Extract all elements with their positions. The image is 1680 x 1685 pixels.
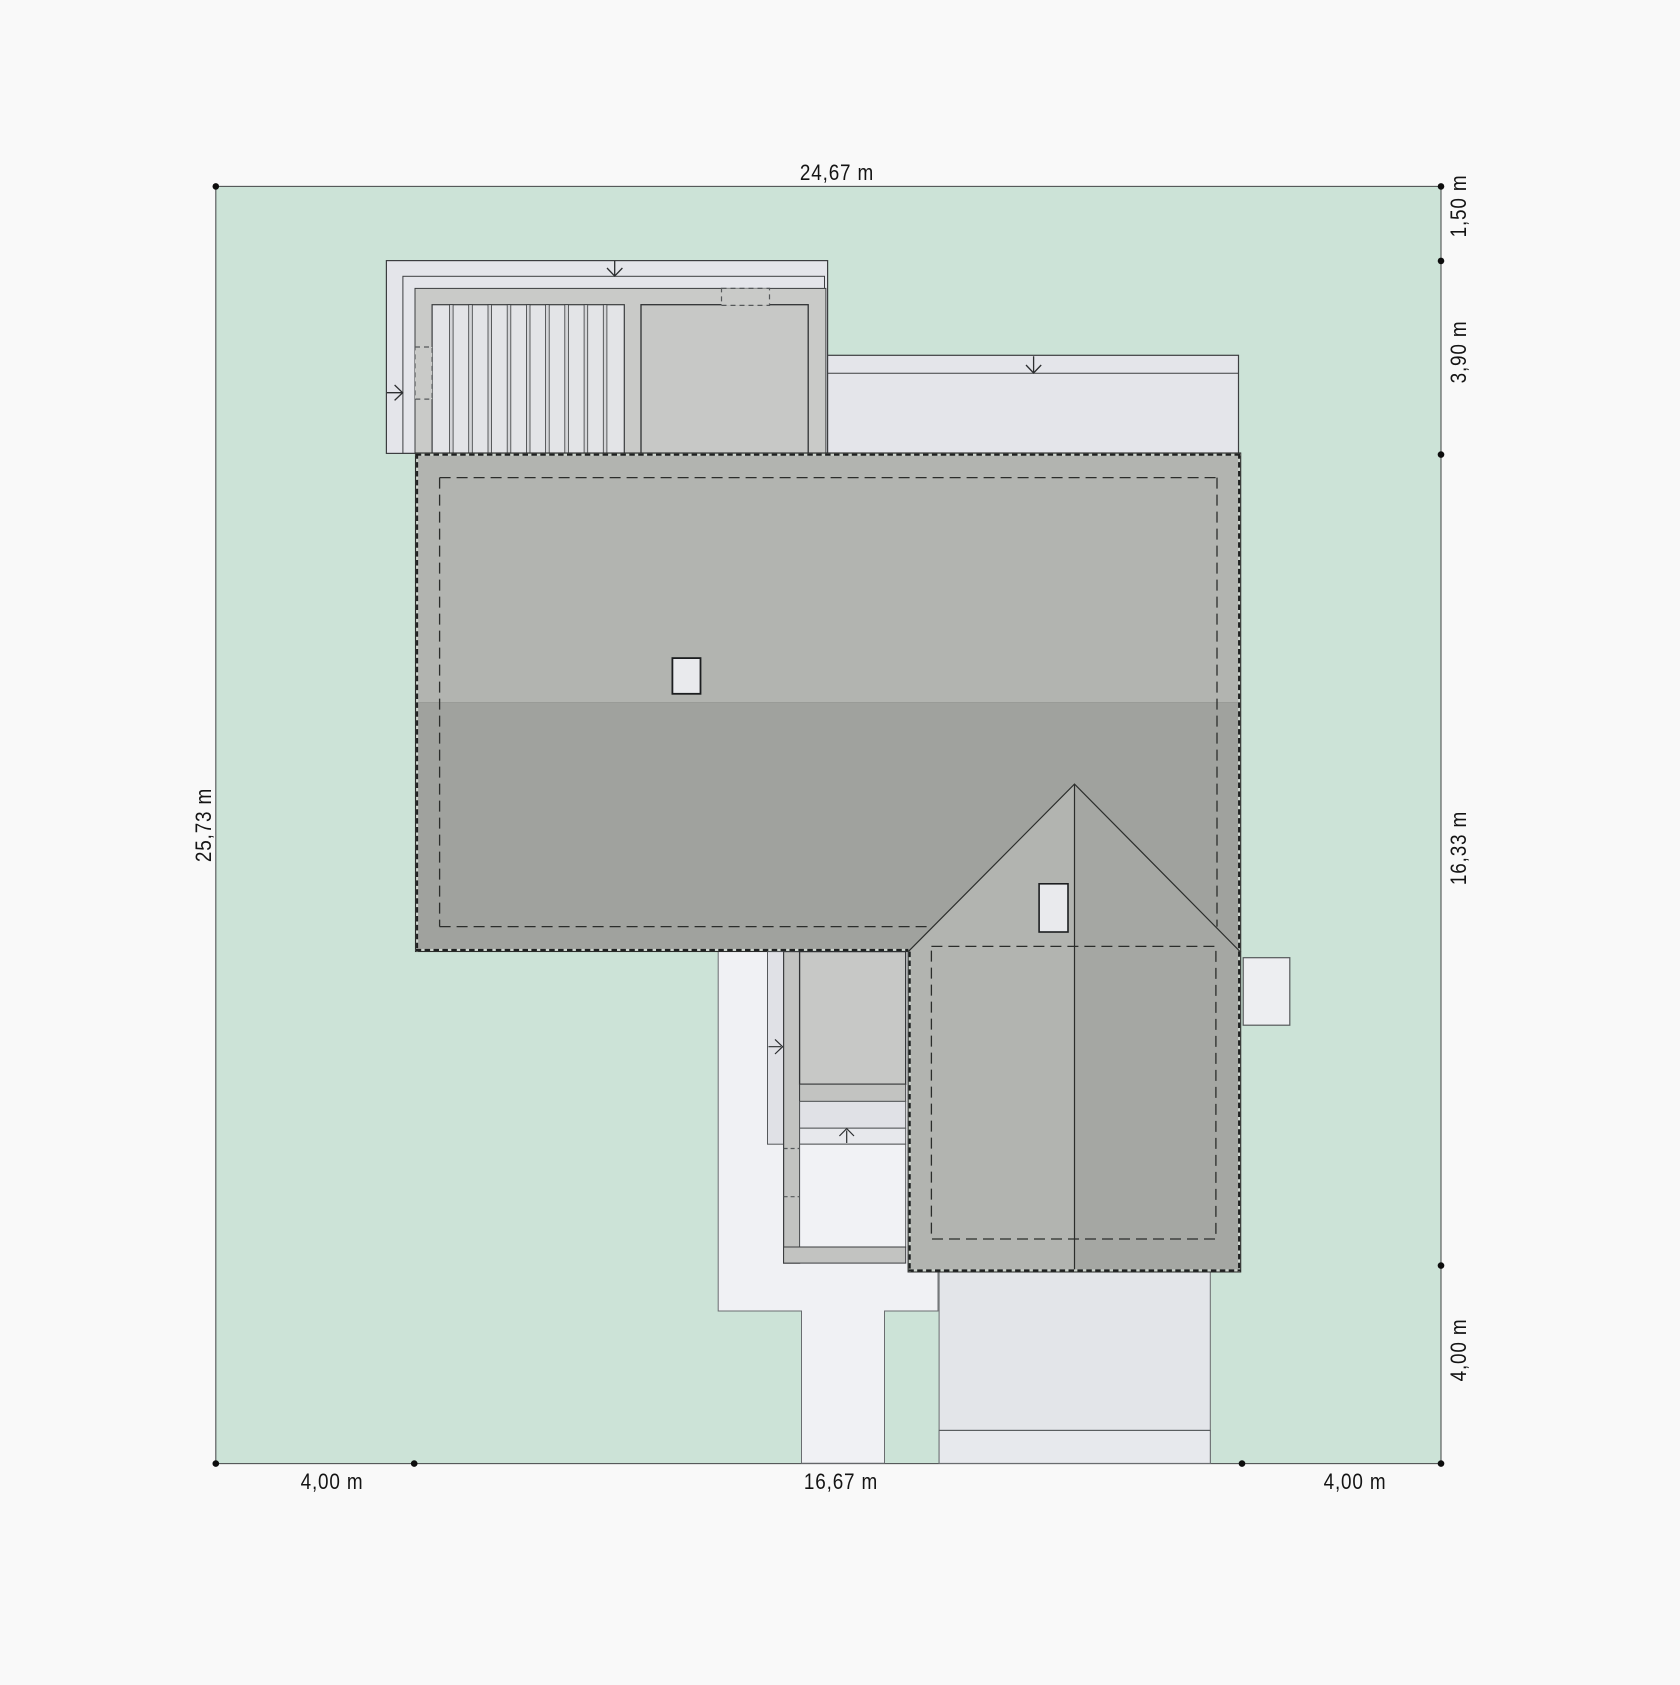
svg-text:25,73 m: 25,73 m: [192, 788, 217, 862]
svg-text:4,00 m: 4,00 m: [1447, 1319, 1472, 1382]
svg-text:4,00 m: 4,00 m: [1324, 1470, 1387, 1495]
svg-text:4,00 m: 4,00 m: [301, 1470, 364, 1495]
svg-text:3,90 m: 3,90 m: [1447, 321, 1472, 384]
svg-text:16,67 m: 16,67 m: [804, 1470, 878, 1495]
svg-text:24,67 m: 24,67 m: [800, 161, 874, 186]
svg-text:1,50 m: 1,50 m: [1447, 175, 1472, 238]
svg-text:16,33 m: 16,33 m: [1447, 811, 1472, 885]
